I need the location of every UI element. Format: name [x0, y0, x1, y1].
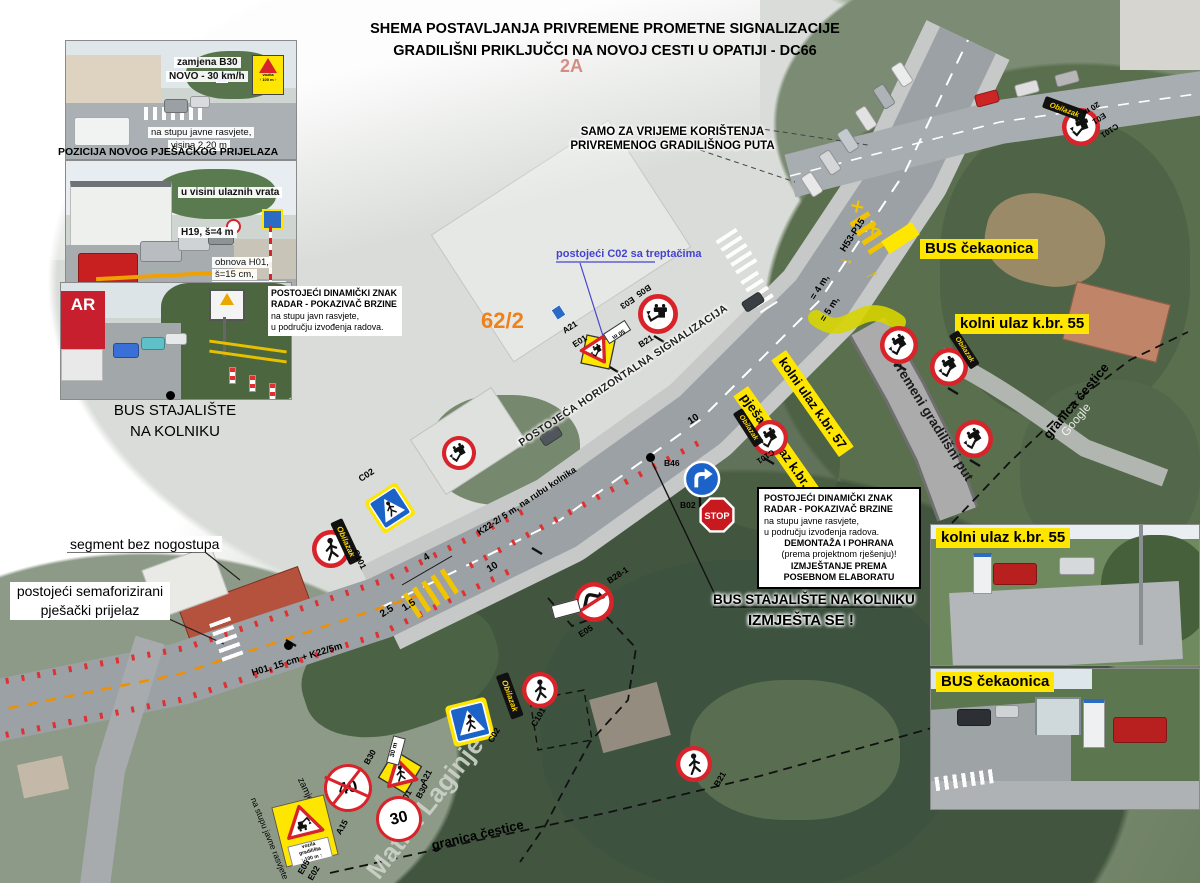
page-title: SHEMA POSTAVLJANJA PRIVREMENE PROMETNE S…	[340, 18, 870, 63]
annotation: zamjena B30	[174, 57, 241, 68]
traffic-signage-scheme: × × → → 2A SHEMA POSTAVLJANJA PRIVREMENE…	[0, 0, 1200, 883]
sign-no-pedestrians	[673, 743, 716, 786]
note-line-2: PRIVREMENOG GRADILIŠNOG PUTA	[545, 139, 800, 153]
label-semaforizirani: postojeći semaforiziranipješački prijela…	[10, 582, 170, 620]
label-izmjesta-se: IZMJEŠTA SE !	[748, 612, 854, 629]
photo-radar-sign: AR	[60, 282, 292, 400]
sign-stop: STOP	[698, 496, 736, 534]
annotation: š=15 cm,	[212, 269, 257, 280]
photo-speed-sign: vozila ↑ 100 m ↑ zamjena B30 NOVO - 30 k…	[65, 40, 297, 160]
bus-stop-caption: BUS STAJALIŠTE NA KOLNIKU	[60, 400, 290, 442]
sign-code: B02	[680, 500, 696, 510]
annotation: NOVO - 30 km/h	[166, 71, 248, 82]
spar-billboard: AR	[61, 291, 105, 349]
annotation: na stupu javne rasvjete,	[148, 127, 254, 138]
billboard	[61, 349, 103, 381]
label-segment-bez-nogostupa: segment bez nogostupa	[67, 536, 222, 552]
label-kolni-ulaz-55: kolni ulaz k.br. 55	[955, 314, 1089, 334]
label-parcel-62-2: 62/2	[481, 308, 524, 334]
works-sign: vozila ↑ 100 m ↑	[252, 55, 284, 95]
title-line-2: GRADILIŠNI PRIKLJUČCI NA NOVOJ CESTI U O…	[340, 40, 870, 62]
annotation: u visini ulaznih vrata	[178, 187, 282, 198]
radar-removal-box: POSTOJEĆI DINAMIČKI ZNAK RADAR - POKAZIV…	[757, 487, 921, 589]
radar-display-sign	[209, 289, 245, 321]
sign-turn-right-b46	[683, 460, 721, 498]
sign-no-pedestrians	[519, 669, 561, 711]
title-line-1: SHEMA POSTAVLJANJA PRIVREMENE PROMETNE S…	[340, 18, 870, 40]
annotation: obnova H01,	[212, 257, 272, 268]
radar-note: POSTOJEĆI DINAMIČKI ZNAK RADAR - POKAZIV…	[268, 286, 402, 336]
position-dot	[646, 453, 655, 462]
temporary-use-note: SAMO ZA VRIJEME KORIŠTENJA PRIVREMENOG G…	[545, 125, 800, 154]
sign-code: B46	[664, 458, 680, 468]
label-bus-kolniku: BUS STAJALIŠTE NA KOLNIKU	[713, 592, 915, 607]
note-line-1: SAMO ZA VRIJEME KORIŠTENJA	[545, 125, 800, 139]
ad-panel	[1083, 699, 1105, 748]
position-dot	[284, 641, 293, 650]
sign-pole	[269, 226, 272, 286]
label-photo-bus-cekaonica: BUS čekaonica	[936, 672, 1054, 692]
label-c02-treptacima: postojeći C02 sa treptačima	[556, 248, 702, 260]
sign-no-construction-vehicles	[638, 294, 678, 334]
photo2-header: POZICIJA NOVOG PJEŠAČKOG PRIJELAZA	[58, 146, 278, 158]
label-photo-kolni-55: kolni ulaz k.br. 55	[936, 528, 1070, 548]
pole	[1139, 525, 1143, 645]
bus-shelter	[1035, 697, 1081, 735]
annotation: H19, š=4 m	[178, 227, 237, 238]
ad-panel	[973, 553, 992, 594]
svg-text:STOP: STOP	[704, 511, 729, 521]
crosswalk-sign	[262, 209, 283, 230]
position-dot	[166, 391, 175, 400]
label-bus-cekaonica: BUS čekaonica	[920, 239, 1038, 259]
